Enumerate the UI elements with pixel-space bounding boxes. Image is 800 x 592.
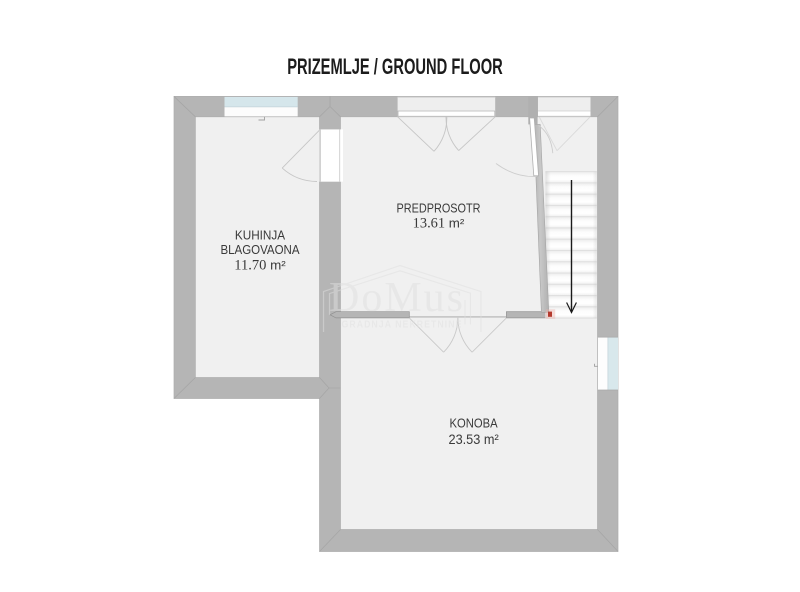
svg-text:23.53 m²: 23.53 m² xyxy=(449,431,500,447)
svg-text:13.61 m²: 13.61 m² xyxy=(413,216,465,232)
svg-text:11.70 m²: 11.70 m² xyxy=(234,257,286,273)
svg-text:GRADNJA NEKRETNINE: GRADNJA NEKRETNINE xyxy=(342,320,463,331)
svg-text:KONOBA: KONOBA xyxy=(450,416,498,431)
svg-text:DoMus: DoMus xyxy=(329,275,465,321)
svg-text:PRIZEMLJE / GROUND FLOOR: PRIZEMLJE / GROUND FLOOR xyxy=(287,54,503,79)
svg-text:PREDPROSOTR: PREDPROSOTR xyxy=(397,201,481,216)
svg-text:BLAGOVAONA: BLAGOVAONA xyxy=(220,242,299,257)
svg-text:KUHINJA: KUHINJA xyxy=(235,228,285,243)
